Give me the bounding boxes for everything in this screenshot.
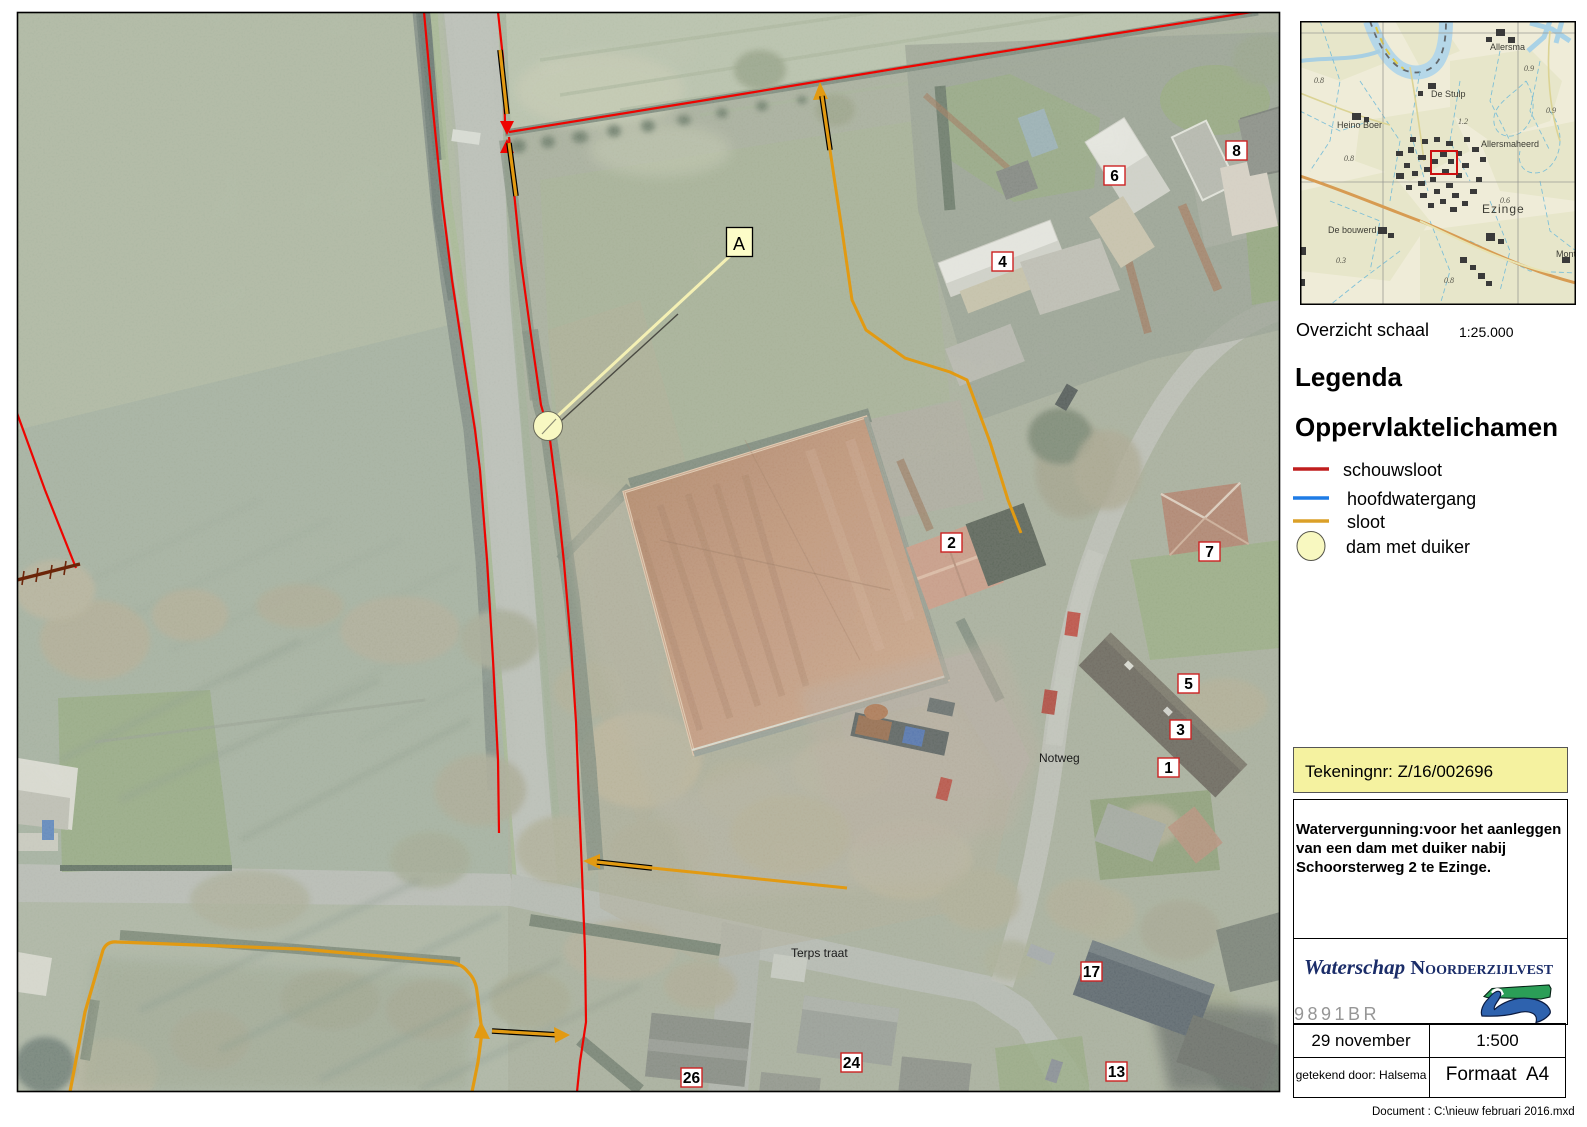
svg-text:7: 7 (1205, 544, 1214, 561)
svg-text:0.9: 0.9 (1524, 64, 1534, 73)
svg-text:1.2: 1.2 (1458, 117, 1468, 126)
svg-text:17: 17 (1083, 964, 1100, 981)
svg-text:24: 24 (843, 1055, 861, 1072)
svg-text:De bouwerd: De bouwerd (1328, 225, 1377, 235)
svg-text:3: 3 (1176, 722, 1185, 739)
svg-text:0.6: 0.6 (1500, 196, 1510, 205)
svg-text:0.8: 0.8 (1314, 76, 1324, 85)
svg-text:Allersma: Allersma (1490, 42, 1525, 52)
svg-text:Heino Boer: Heino Boer (1337, 120, 1382, 130)
svg-text:0.3: 0.3 (1336, 256, 1346, 265)
svg-text:Allersmaheerd: Allersmaheerd (1481, 139, 1539, 149)
svg-text:6: 6 (1110, 168, 1119, 185)
svg-text:Terps traat: Terps traat (791, 946, 848, 960)
svg-text:1: 1 (1164, 760, 1173, 777)
svg-text:13: 13 (1108, 1064, 1126, 1081)
svg-text:0.8: 0.8 (1344, 154, 1354, 163)
svg-text:8: 8 (1232, 143, 1241, 160)
svg-text:26: 26 (683, 1070, 701, 1087)
svg-text:0.8: 0.8 (1444, 276, 1454, 285)
svg-text:4: 4 (998, 254, 1007, 271)
svg-text:5: 5 (1184, 676, 1193, 693)
svg-text:2: 2 (947, 535, 956, 552)
svg-text:A: A (733, 234, 745, 254)
svg-text:Notweg: Notweg (1039, 751, 1080, 765)
svg-text:0.9: 0.9 (1546, 106, 1556, 115)
svg-text:De Stulp: De Stulp (1431, 89, 1466, 99)
svg-text:Monto: Monto (1556, 249, 1576, 259)
